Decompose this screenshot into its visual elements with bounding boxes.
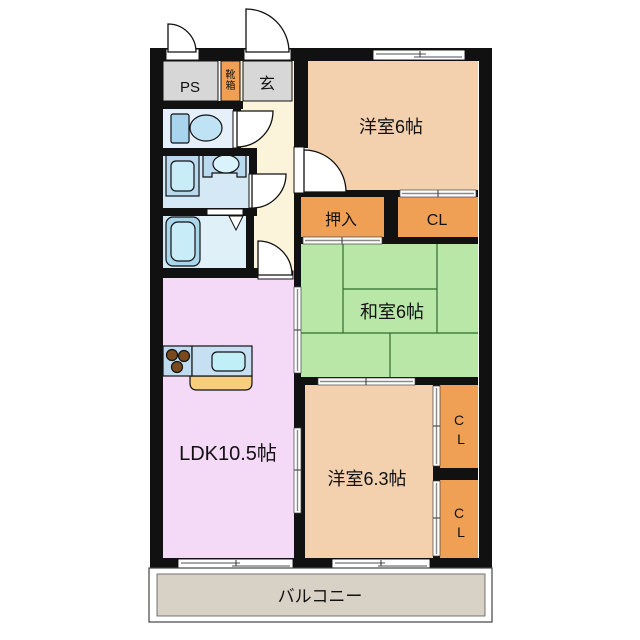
oshiire-label: 押入 xyxy=(325,211,357,229)
entrance-door-arc xyxy=(244,9,291,60)
balcony-label: バルコニー xyxy=(278,587,363,606)
closet-top-label: CL xyxy=(427,212,448,229)
bathtub-icon xyxy=(166,217,200,266)
bathroom-door-strip xyxy=(207,209,243,215)
entrance-label: 玄 xyxy=(259,75,275,93)
japanese6-label: 和室6帖 xyxy=(360,302,424,322)
sliding-door-closet-right-lower xyxy=(433,481,440,556)
sliding-door-closet-right-upper xyxy=(433,386,440,466)
sliding-door-ldk-west63 xyxy=(294,428,301,513)
sliding-door-closet-top xyxy=(400,190,476,197)
western6-label: 洋室6帖 xyxy=(359,117,423,137)
window-top xyxy=(373,50,465,60)
sliding-door-oshiire xyxy=(303,237,382,244)
ps-door-arc xyxy=(166,24,199,60)
ldk-room xyxy=(163,278,294,558)
sliding-door-ldk-japanese xyxy=(294,287,301,373)
shoebox-label: 靴箱 xyxy=(226,68,236,92)
sliding-door-japanese-west63 xyxy=(318,378,415,385)
floor-plan-page: PS 靴箱 玄 洋室6帖 押入 CL 和室6帖 LDK10.5帖 洋室6.3帖 … xyxy=(0,0,640,640)
washer-icon xyxy=(166,155,199,196)
ldk-label: LDK10.5帖 xyxy=(179,442,277,465)
floor-plan-svg: PS 靴箱 玄 洋室6帖 押入 CL 和室6帖 LDK10.5帖 洋室6.3帖 … xyxy=(0,0,640,640)
toilet-icon xyxy=(171,114,222,143)
ps-label: PS xyxy=(180,79,200,96)
western63-label: 洋室6.3帖 xyxy=(327,469,406,489)
vanity-sink-icon xyxy=(203,153,246,177)
